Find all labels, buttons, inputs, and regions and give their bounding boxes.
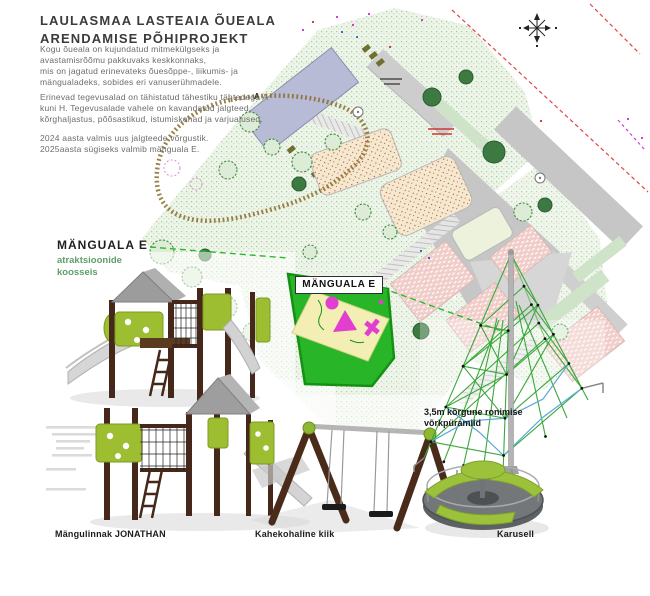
site-plan-art: A [0,0,650,596]
area-e-callout-title: MÄNGUALA E [57,238,148,252]
equipment-label-swing: Kahekohaline kiik [255,529,334,539]
intro-paragraph: Kogu õueala on kujundatud mitmekülgseks … [40,44,270,88]
north-compass-icon [519,13,557,47]
equipment-label-playhouse: Mängulinnak JONATHAN [55,529,166,539]
pyramid-callout: 3,5m kõrgune ronimise võrkpüramiid [424,407,523,429]
timeline-paragraph: 2024 aasta valmis uus jalgteede võrgusti… [40,133,270,155]
areas-paragraph: Erinevad tegevusalad on tähistatud tähes… [40,92,290,125]
poster-canvas: A [0,0,650,596]
area-e-callout-subtitle: atraktsioonide koosseis [57,255,148,278]
plan-area-e-label: MÄNGUALA E [295,276,383,294]
area-e-callout: MÄNGUALA E atraktsioonide koosseis [57,238,148,278]
project-title-line1: LAULASMAA LASTEAIA ÕUEALA [40,12,276,30]
equipment-label-carousel: Karusell [497,529,534,539]
